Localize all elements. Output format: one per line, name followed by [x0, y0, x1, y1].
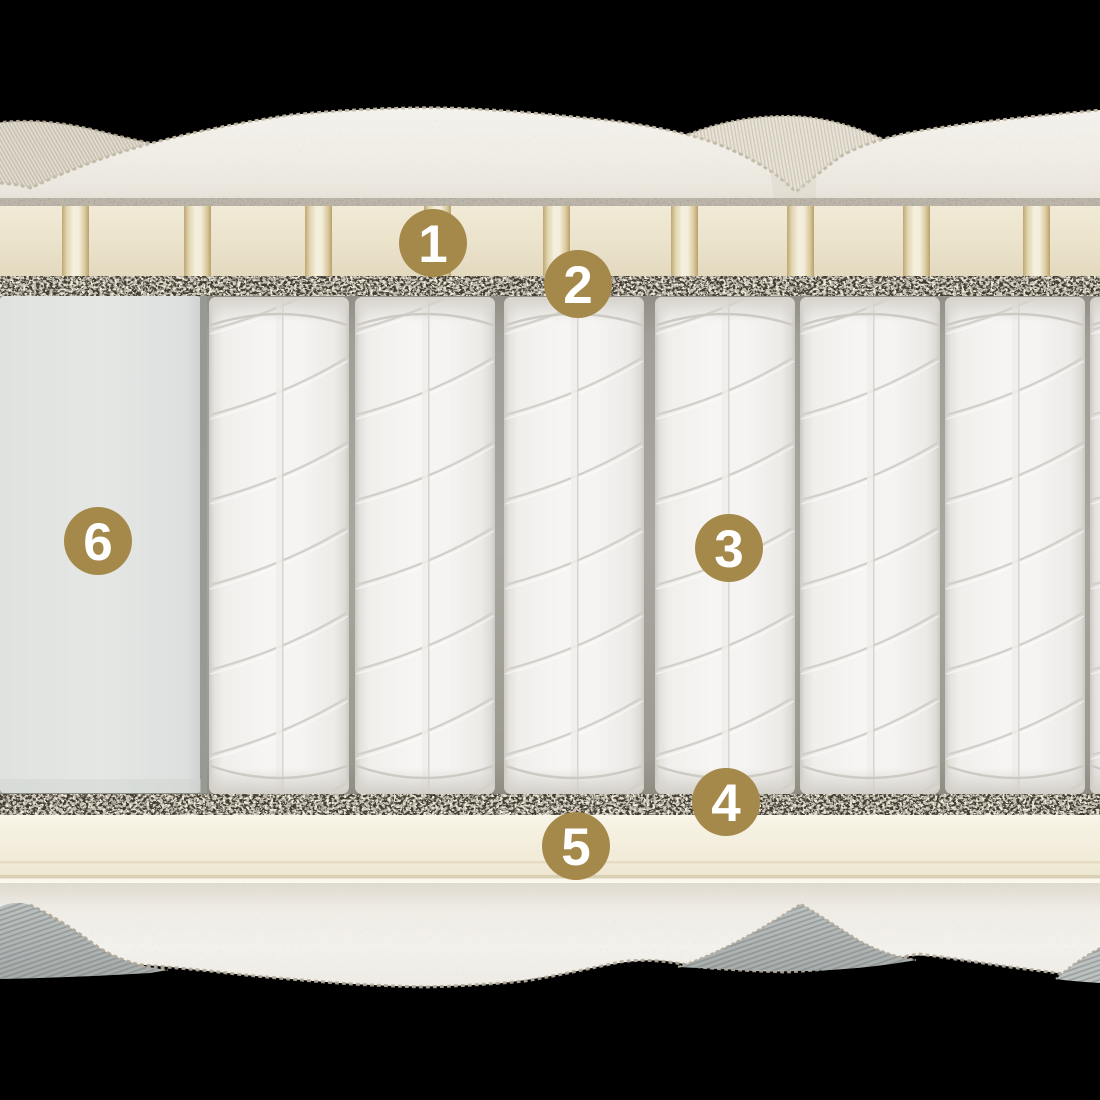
svg-text:2: 2 [563, 256, 592, 315]
svg-text:5: 5 [561, 818, 590, 877]
svg-text:3: 3 [714, 520, 743, 579]
svg-text:1: 1 [418, 215, 447, 274]
svg-text:4: 4 [711, 774, 741, 833]
svg-text:6: 6 [83, 513, 112, 572]
